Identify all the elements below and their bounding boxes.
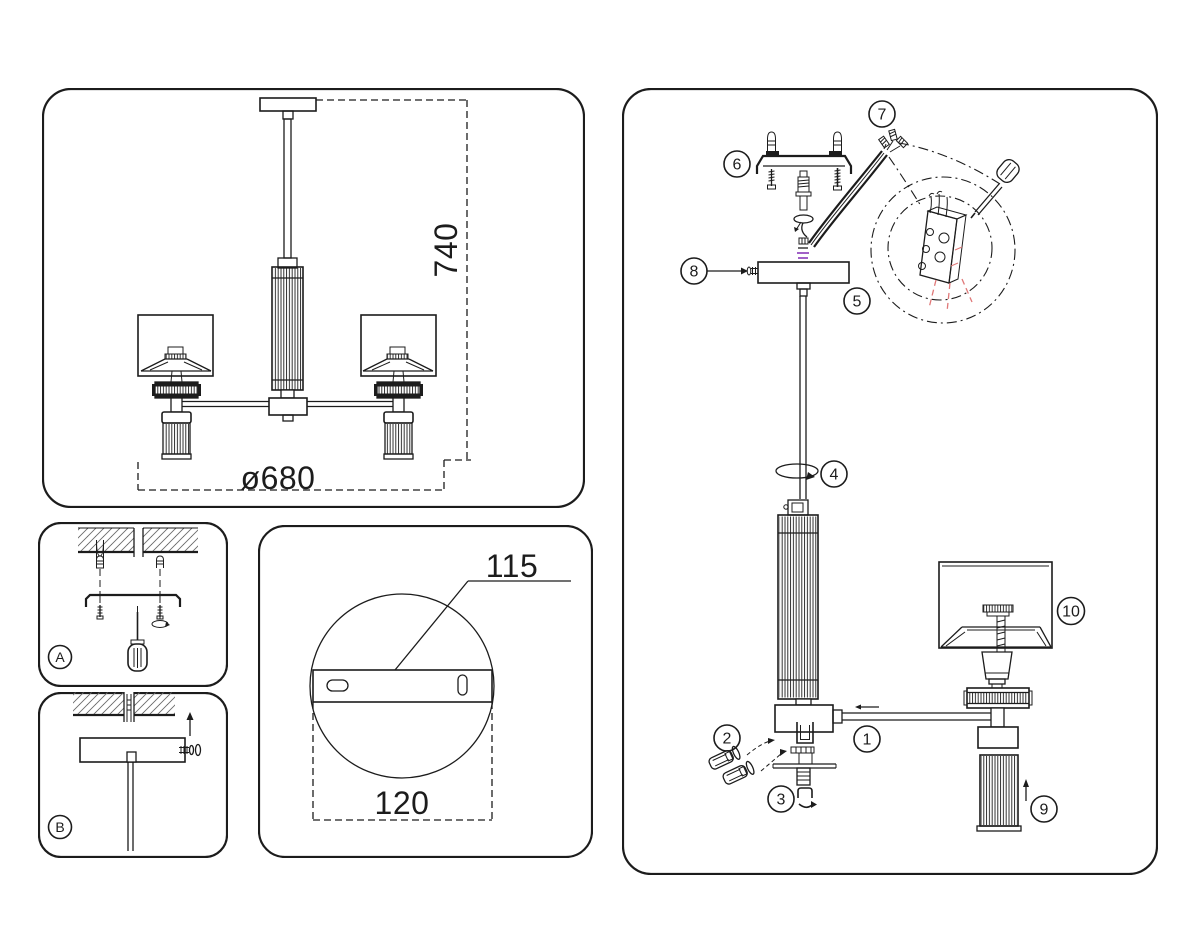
callout-10: 10 [1058, 598, 1085, 625]
callout-6: 6 [724, 151, 750, 177]
wire-terminal-icon [879, 136, 890, 148]
terminal-block [919, 191, 967, 283]
panel-frame [623, 89, 1157, 874]
callout-3: 3 [768, 786, 794, 812]
callout-8: 8 [681, 258, 707, 284]
height-dimension: 740 [428, 223, 464, 278]
callout-1: 1 [854, 726, 880, 752]
svg-text:9: 9 [1040, 802, 1049, 819]
svg-text:7: 7 [878, 107, 887, 124]
wire-mark-red [929, 280, 936, 308]
mounting-bar [313, 670, 492, 702]
svg-text:10: 10 [1062, 604, 1080, 621]
hub-assembly [773, 699, 991, 785]
chandelier-front-view [138, 98, 436, 459]
canopy-screw-group [707, 267, 758, 275]
step-b-label: B [49, 816, 72, 839]
right-lamp-unit [361, 315, 436, 459]
svg-text:4: 4 [830, 467, 839, 484]
step-b-panel: B [38, 692, 228, 858]
hanger-stud-group [794, 171, 813, 258]
callout-5: 5 [844, 288, 870, 314]
panel-frame [43, 89, 584, 507]
left-lamp-unit [138, 315, 213, 459]
svg-text:8: 8 [690, 264, 699, 281]
wire-mark-red [947, 283, 950, 312]
screw-icon [834, 168, 842, 190]
step-a-label: A [49, 646, 72, 669]
callout-4: 4 [821, 461, 847, 487]
rotate-indicator-icon [152, 606, 170, 628]
svg-text:3: 3 [777, 792, 786, 809]
assembly-panel: 1 2 3 4 5 6 7 8 [622, 88, 1158, 875]
bracket-screws [97, 596, 163, 619]
right-lamp-unit [939, 562, 1052, 831]
canopy-notch [127, 752, 136, 762]
wire-terminal-icon [889, 129, 897, 140]
screw-icon [768, 169, 776, 189]
svg-text:1: 1 [863, 732, 872, 749]
overview-panel: 740 ø680 [42, 88, 585, 508]
svg-text:A: A [55, 649, 65, 665]
svg-text:2: 2 [723, 731, 732, 748]
svg-text:6: 6 [733, 157, 742, 174]
bulbs-group [707, 738, 787, 786]
rotate-indicator-icon [776, 464, 818, 480]
step-a-panel: A [38, 522, 228, 687]
callout-7: 7 [869, 101, 895, 127]
ceiling-bracket-group [757, 132, 851, 190]
clip-part-group [798, 788, 817, 808]
rod-clamp [784, 500, 808, 515]
socket-cup [982, 652, 1012, 679]
hole-spacing-dimension: 115 [486, 548, 539, 584]
central-column-ribs [780, 517, 817, 698]
screwdriver-icon [971, 157, 1022, 218]
diameter-dimension: ø680 [241, 460, 316, 496]
installation-instruction-sheet: 740 ø680 [0, 0, 1200, 933]
svg-text:B: B [55, 819, 64, 835]
central-column-ribs [273, 268, 302, 390]
terminal-detail-bubble [871, 143, 1022, 323]
screwdriver-icon [128, 606, 147, 671]
mains-cable-group [809, 129, 908, 247]
ceiling-section [73, 692, 175, 722]
canopy-plate [758, 262, 849, 283]
plate-width-dimension: 120 [375, 785, 430, 821]
svg-text:5: 5 [853, 294, 862, 311]
callout-2: 2 [714, 725, 740, 751]
side-screw-icon [179, 745, 201, 756]
up-arrow-icon [187, 712, 194, 736]
central-hub [775, 705, 833, 732]
callout-9: 9 [1031, 796, 1057, 822]
wire-terminal-icon [896, 136, 907, 147]
central-hub [269, 398, 307, 415]
plate-detail-panel: 115 120 [258, 525, 593, 858]
